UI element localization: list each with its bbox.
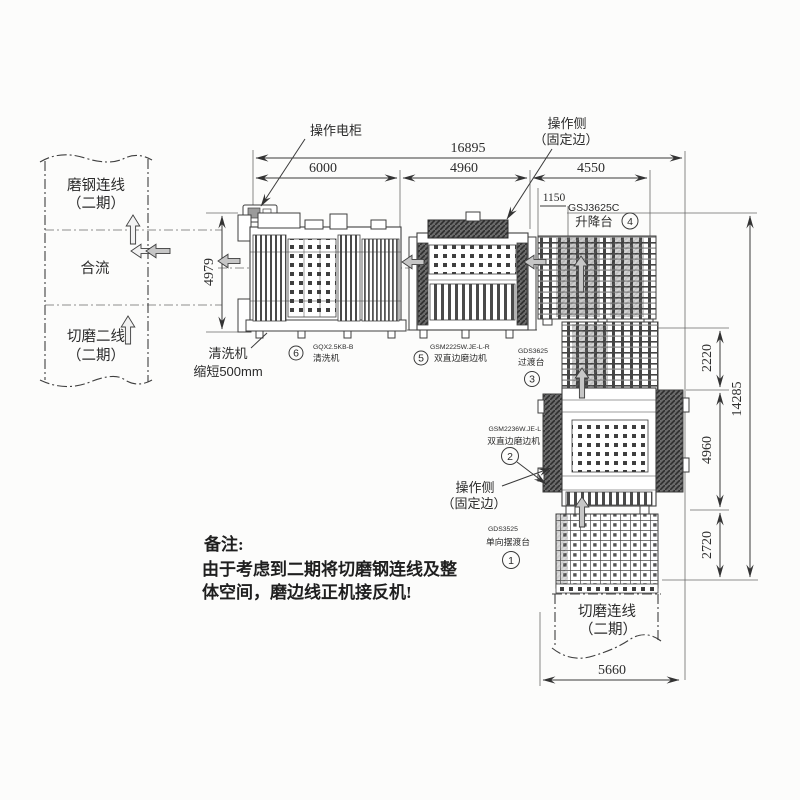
operator-side-bottom-2: （固定边） bbox=[441, 496, 506, 511]
dim-r3: 2720 bbox=[700, 531, 715, 559]
remark-note: 备注: 由于考虑到二期将切磨钢连线及整 体空间，磨边线正机接反机! bbox=[202, 534, 457, 602]
left-flow-bottom-label: 切磨二线 bbox=[67, 328, 125, 345]
dim-seg3: 4550 bbox=[577, 161, 605, 176]
m4-model: GSJ3625C bbox=[568, 202, 620, 214]
edger5-fixed-side bbox=[428, 220, 508, 238]
m1-name: 单向摆渡台 bbox=[486, 536, 530, 547]
flow-left-arrow-icon bbox=[218, 254, 240, 268]
m6-number: 6 bbox=[293, 348, 299, 360]
vertical-line-machines bbox=[538, 236, 689, 593]
dim-r-total: 14285 bbox=[730, 382, 745, 417]
m3-model: GDS3625 bbox=[518, 348, 548, 355]
note-line1: 由于考虑到二期将切磨钢连线及整 bbox=[202, 559, 457, 579]
m6-name: 清洗机 bbox=[313, 352, 340, 363]
left-flow-top-label: 磨钢连线 bbox=[67, 177, 125, 194]
dim-offset: 1150 bbox=[543, 192, 566, 204]
merge-left-arrow-gray-icon bbox=[146, 244, 170, 258]
shuttle-table bbox=[556, 514, 658, 588]
washer-note-2: 缩短500mm bbox=[193, 364, 262, 379]
merge-label: 合流 bbox=[81, 260, 110, 277]
dim-bottom: 5660 bbox=[598, 663, 626, 678]
right-dimensions: 2220 4960 2720 14285 bbox=[700, 216, 750, 577]
flow-up-arrow-icon bbox=[126, 215, 140, 244]
cabinet-leader bbox=[261, 139, 305, 206]
m1-model: GDS3525 bbox=[488, 526, 518, 533]
dim-seg1: 6000 bbox=[309, 161, 337, 176]
left-height-dimension: 4979 bbox=[202, 216, 222, 329]
dim-left-height: 4979 bbox=[202, 258, 217, 286]
dim-total: 16895 bbox=[451, 141, 486, 156]
dim-r1: 2220 bbox=[700, 344, 715, 372]
left-flow-top-phase: （二期） bbox=[67, 195, 125, 212]
m6-model: GQX2.5KB-B bbox=[313, 344, 354, 351]
m5-name: 双直边磨边机 bbox=[434, 352, 487, 363]
m4-number: 4 bbox=[627, 216, 633, 228]
cabinet-callout: 操作电柜 bbox=[310, 123, 362, 138]
top-dimensions: 16895 6000 4960 4550 1150 bbox=[256, 141, 682, 206]
m4-name: 升降台 bbox=[575, 214, 613, 229]
note-line2: 体空间，磨边线正机接反机! bbox=[202, 582, 412, 602]
operator-side-top-leader bbox=[507, 149, 552, 219]
m2-model: GSM2236W.JE-L bbox=[488, 426, 541, 433]
bottom-dimension: 5660 bbox=[543, 663, 679, 680]
left-flow-bottom-phase: （二期） bbox=[67, 347, 125, 364]
operator-side-top: 操作侧 bbox=[547, 116, 586, 131]
operator-side-bottom: 操作侧 bbox=[455, 480, 494, 495]
left-flow-box: 磨钢连线 （二期） 合流 切磨二线 （二期） bbox=[40, 155, 170, 387]
bottom-flow-label: 切磨连线 bbox=[578, 603, 636, 620]
note-title: 备注: bbox=[203, 534, 244, 554]
edger2-fixed-side bbox=[656, 390, 683, 492]
m1-number: 1 bbox=[508, 555, 514, 567]
dim-r2: 4960 bbox=[700, 436, 715, 464]
bottom-flow-phase: （二期） bbox=[579, 621, 637, 638]
bottom-flow-box: 切磨连线 （二期） bbox=[552, 594, 661, 658]
m3-number: 3 bbox=[529, 374, 535, 386]
m3-name: 过渡台 bbox=[518, 356, 545, 367]
washing-line-machines bbox=[238, 205, 537, 338]
dim-seg2: 4960 bbox=[450, 161, 478, 176]
m2-name: 双直边磨边机 bbox=[487, 435, 540, 446]
m5-model: GSM2225W.JE-L-R bbox=[430, 344, 490, 351]
layout-diagram: 磨钢连线 （二期） 合流 切磨二线 （二期） 16895 6000 4960 4… bbox=[0, 0, 800, 800]
m2-number: 2 bbox=[507, 451, 513, 463]
washer-note: 清洗机 bbox=[208, 346, 247, 361]
m5-number: 5 bbox=[418, 353, 424, 365]
operator-side-top-2: （固定边） bbox=[533, 132, 598, 147]
engineering-drawing-page: 磨钢连线 （二期） 合流 切磨二线 （二期） 16895 6000 4960 4… bbox=[0, 0, 800, 800]
